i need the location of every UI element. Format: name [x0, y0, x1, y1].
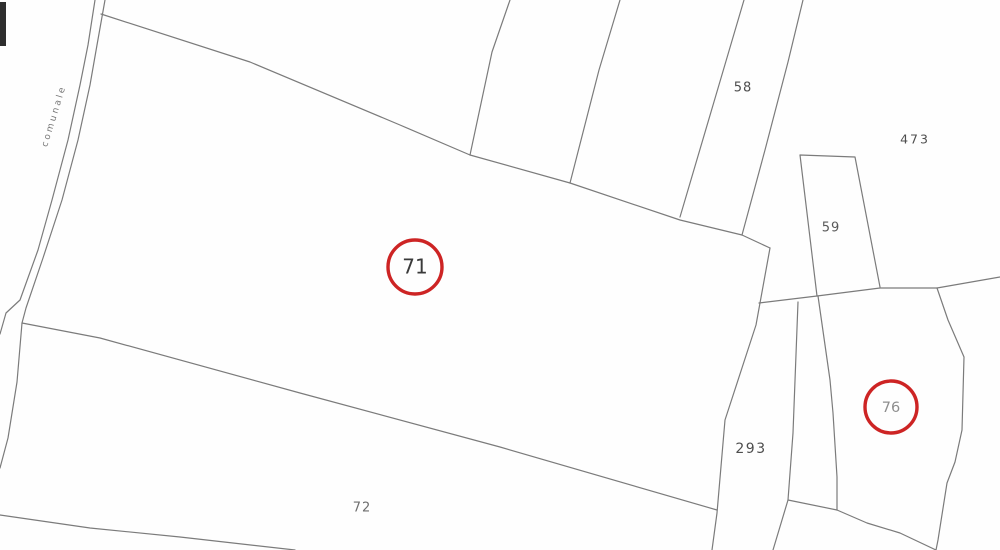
cadastral-map-svg: comunale5847359293727176 [0, 0, 1000, 550]
parcel-label-473: 473 [900, 132, 930, 147]
parcel-marker-76-number: 76 [882, 400, 900, 416]
parcel-label-72: 72 [353, 501, 372, 516]
edge-marker-block [0, 2, 6, 46]
parcel-label-293: 293 [735, 441, 766, 457]
parcel-marker-71-number: 71 [402, 255, 427, 279]
parcel-label-59: 59 [822, 221, 841, 236]
map-viewport[interactable]: comunale5847359293727176 [0, 0, 1000, 550]
map-background [0, 0, 1000, 550]
parcel-label-58: 58 [734, 81, 753, 96]
